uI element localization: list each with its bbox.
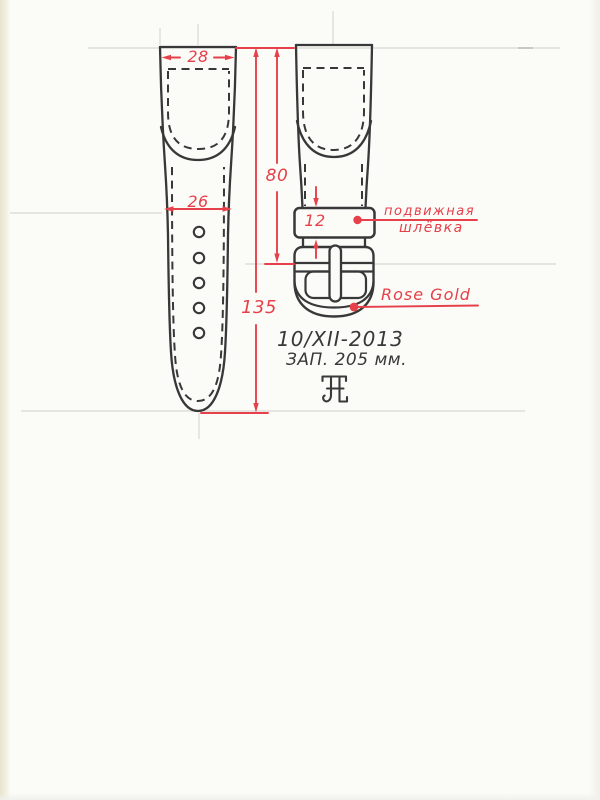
- keeper-leader-dot: [353, 216, 361, 224]
- dim-strap-total-length: 135: [240, 297, 278, 318]
- jl-monogram-icon: [323, 377, 348, 402]
- pencil-guide-lines: [10, 11, 560, 439]
- left-strap-stitching: [168, 69, 229, 401]
- buckle: [295, 246, 374, 317]
- dim-strap-lower-width: 26: [180, 192, 216, 211]
- keeper-label-line1: подвижная: [384, 204, 475, 219]
- keeper-label-line2: шлёвка: [399, 220, 464, 236]
- clasp-note: ЗАП. 205 мм.: [286, 350, 407, 370]
- dim-strap-top-width: 28: [180, 47, 216, 66]
- scanned-sketch-sheet: 28 26 80 12 135 подвижная шлёвка Rose Go…: [0, 0, 600, 800]
- buckle-prong: [330, 246, 342, 302]
- right-strap-stitching: [303, 68, 364, 206]
- dim-length-to-buckle: 80: [264, 166, 290, 186]
- dim-keeper-height: 12: [302, 211, 328, 230]
- strap-holes: [194, 227, 204, 338]
- buckle-material-label: Rose Gold: [381, 285, 471, 304]
- strap-drawing-svg: [0, 0, 600, 800]
- buckle-leader-dot: [350, 303, 359, 312]
- date-note: 10/XII-2013: [277, 327, 404, 351]
